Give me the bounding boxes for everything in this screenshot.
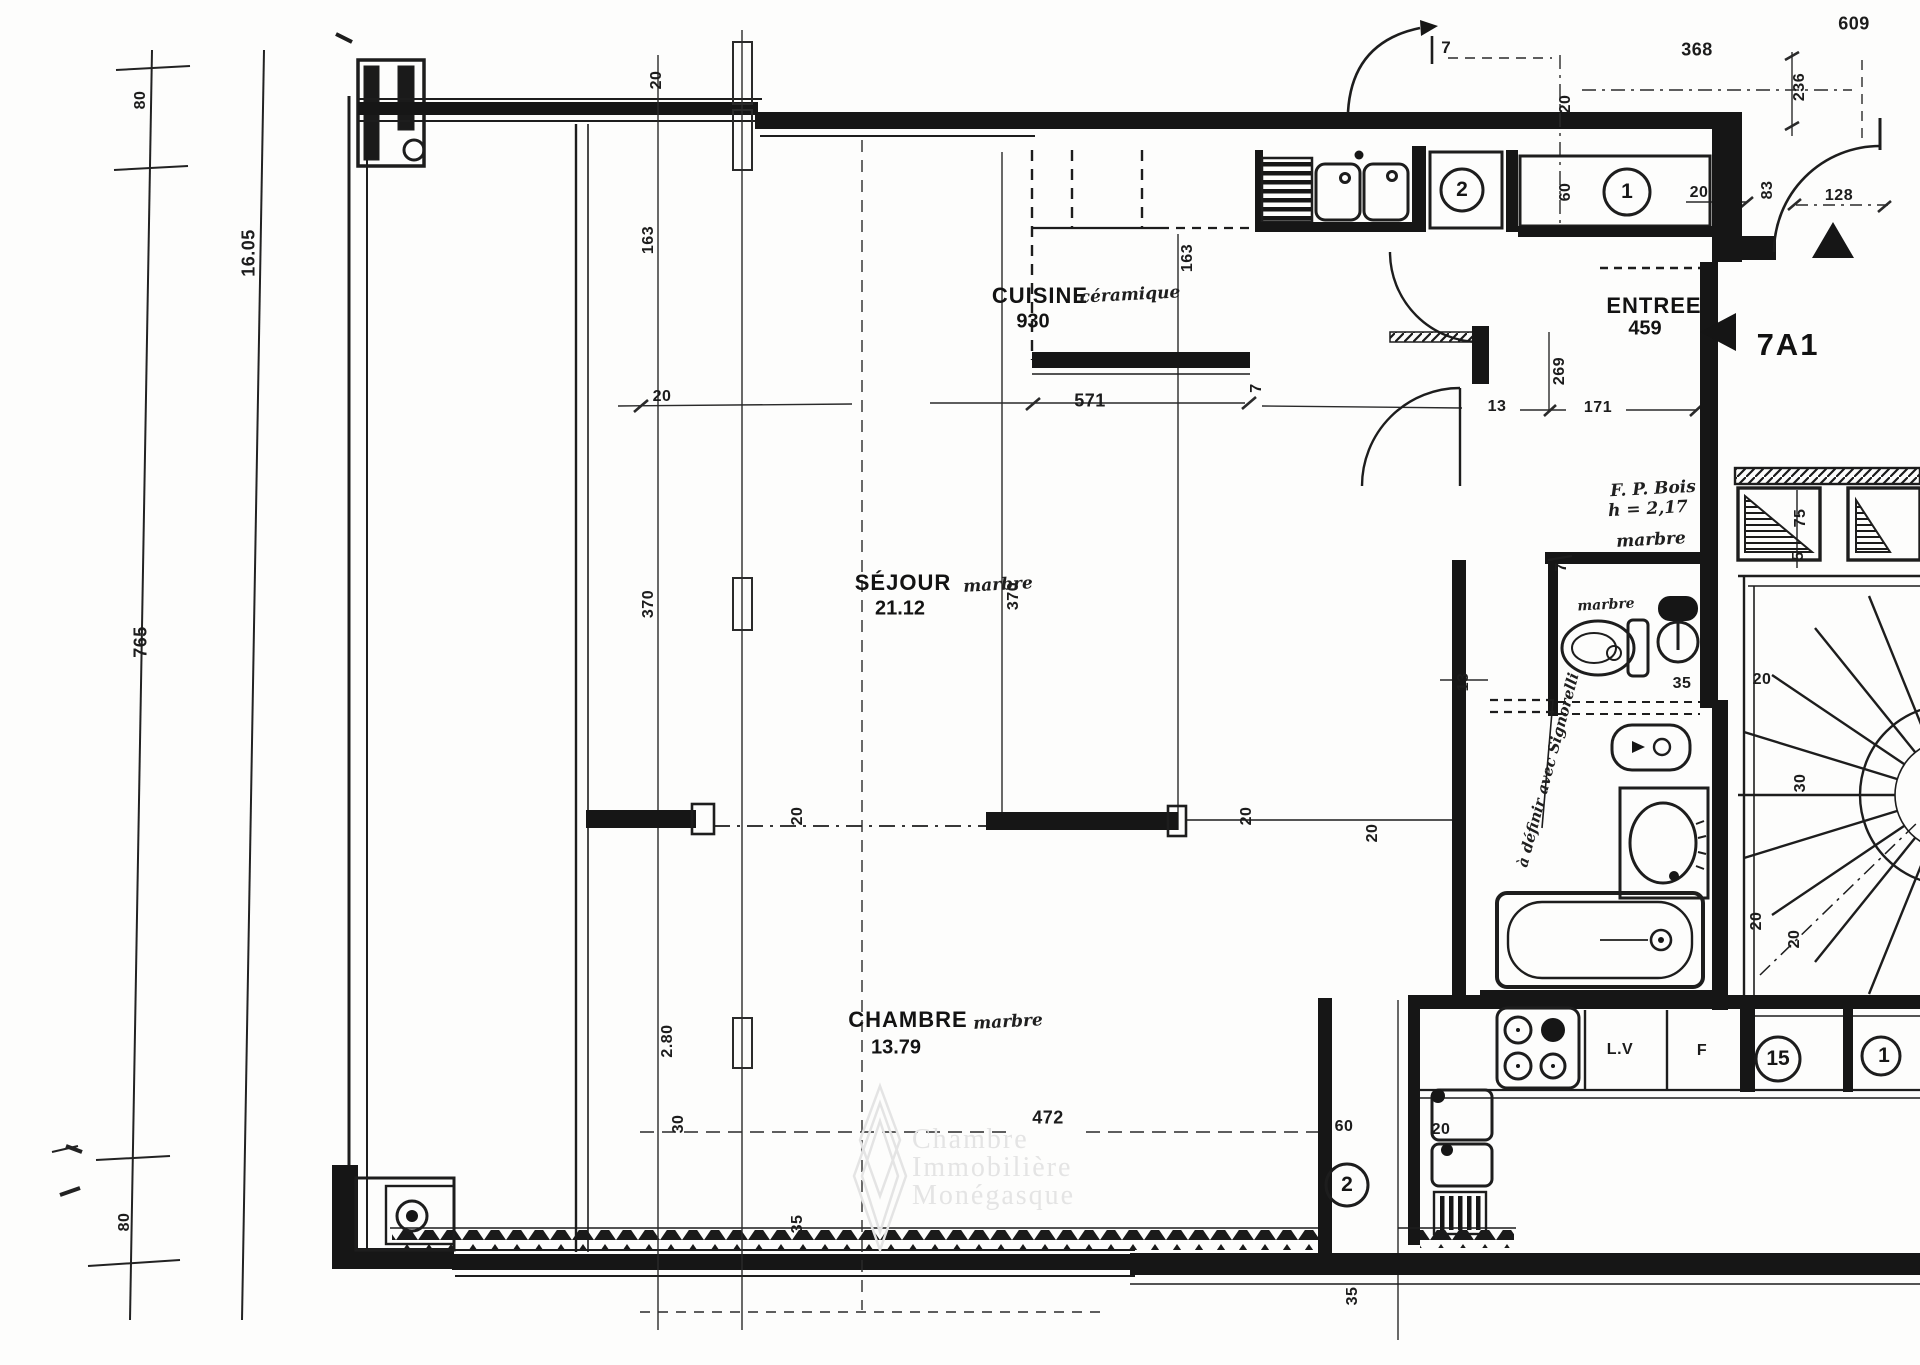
dim-label: 80 xyxy=(116,1213,134,1232)
washbasin-fixture xyxy=(1620,788,1708,898)
room-finish-chambre: marbre xyxy=(973,1010,1044,1034)
stair-zone xyxy=(1735,468,1920,1016)
dim-label: 75 xyxy=(1792,509,1810,528)
circled-number: 1 xyxy=(1878,1044,1890,1068)
label-dishwasher: L.V xyxy=(1607,1041,1633,1059)
room-label-sejour: SÉJOUR xyxy=(855,570,951,596)
left-dimension-lines xyxy=(52,50,264,1320)
vent-shafts xyxy=(1738,488,1920,568)
floorplan-page: Chambre Immobilière Monégasque CUISINE c… xyxy=(0,0,1920,1365)
dim-label: 16.05 xyxy=(239,229,260,277)
column-bottom-left xyxy=(332,1165,454,1269)
dim-label: 13 xyxy=(1455,673,1473,692)
dim-label: 368 xyxy=(1681,40,1713,61)
kitchen-counters xyxy=(1032,146,1712,374)
dim-label: 472 xyxy=(1032,1108,1064,1129)
dim-label: 60 xyxy=(1557,183,1575,202)
dim-label: 60 xyxy=(1335,1118,1354,1136)
room-area-cuisine: 930 xyxy=(1016,311,1049,334)
note-fp-height: h = 2,17 xyxy=(1608,497,1689,521)
dim-label: 128 xyxy=(1825,187,1853,205)
bathtub-fixture xyxy=(1497,893,1703,987)
label-fridge: F xyxy=(1697,1042,1707,1060)
dim-label: 20 xyxy=(1432,1121,1451,1139)
dim-label: 163 xyxy=(640,226,658,254)
dim-label: 35 xyxy=(789,1215,807,1234)
dim-label: 171 xyxy=(1584,399,1612,417)
unit-arrow-icon xyxy=(1700,313,1736,351)
dim-label: 83 xyxy=(1759,181,1777,200)
note-wc-finish: marbre xyxy=(1577,596,1635,615)
dim-label: 80 xyxy=(132,91,150,110)
dim-label: 20 xyxy=(1748,912,1766,931)
bidet-fixture xyxy=(1612,725,1690,770)
unit-number: 7A1 xyxy=(1757,327,1820,363)
dim-label: 20 xyxy=(1557,95,1575,114)
dim-label: 20 xyxy=(1238,807,1256,826)
cooktop xyxy=(1497,1008,1579,1088)
door-label-7: 7 xyxy=(1441,38,1450,58)
note-fp-finish: marbre xyxy=(1616,528,1687,552)
dim-label: 20 xyxy=(653,388,672,406)
dim-label: 765 xyxy=(131,626,152,658)
circled-number: 2 xyxy=(1341,1173,1353,1197)
interior-double-door xyxy=(1362,252,1489,486)
dim-label: 7 xyxy=(1553,562,1571,571)
partition-wall xyxy=(586,804,1452,836)
north-arrow-icon xyxy=(1812,222,1854,258)
toilet-fixture xyxy=(1562,620,1648,676)
kitchen-sink xyxy=(1316,151,1408,221)
wc-handbasin xyxy=(1658,596,1698,662)
spiral-stair-treads xyxy=(1735,581,1920,1009)
dim-label: 269 xyxy=(1551,357,1569,385)
dim-label: 35 xyxy=(1344,1287,1362,1306)
room-area-entree: 459 xyxy=(1628,318,1661,341)
dim-label: 7 xyxy=(1248,383,1266,392)
dim-label: 35 xyxy=(1673,675,1692,693)
room-label-chambre: CHAMBRE xyxy=(848,1007,967,1033)
circled-number: 1 xyxy=(1621,180,1633,204)
room-label-cuisine: CUISINE xyxy=(992,283,1088,309)
dim-label: 20 xyxy=(648,71,666,90)
dim-label: 20 xyxy=(1364,824,1382,843)
dim-label: 20 xyxy=(1753,671,1772,689)
bathroom xyxy=(1452,560,1728,1010)
dim-label: 13 xyxy=(1488,398,1507,416)
watermark-line: Monégasque xyxy=(912,1180,1075,1212)
room-area-sejour: 21.12 xyxy=(875,598,925,621)
room-area-chambre: 13.79 xyxy=(871,1037,921,1060)
dim-label: 609 xyxy=(1838,14,1870,35)
room-label-entree: ENTREE xyxy=(1606,293,1701,319)
dim-label: 571 xyxy=(1074,391,1106,412)
dim-label: 2.80 xyxy=(659,1024,677,1057)
dim-label: 30 xyxy=(670,1115,688,1134)
dim-label: 20 xyxy=(789,807,807,826)
dim-label: 163 xyxy=(1179,244,1197,272)
circled-number: 2 xyxy=(1456,178,1468,202)
terrace-door-arc xyxy=(1348,28,1420,112)
dim-label: 30 xyxy=(1792,774,1810,793)
dim-label: 20 xyxy=(1786,930,1804,949)
circled-number: 15 xyxy=(1766,1047,1789,1071)
dim-label: 20 xyxy=(1690,184,1709,202)
dim-label: 236 xyxy=(1791,73,1809,101)
dim-label: 370 xyxy=(1005,582,1023,610)
dim-label: 370 xyxy=(640,590,658,618)
dim-label: 5 xyxy=(1790,551,1808,560)
